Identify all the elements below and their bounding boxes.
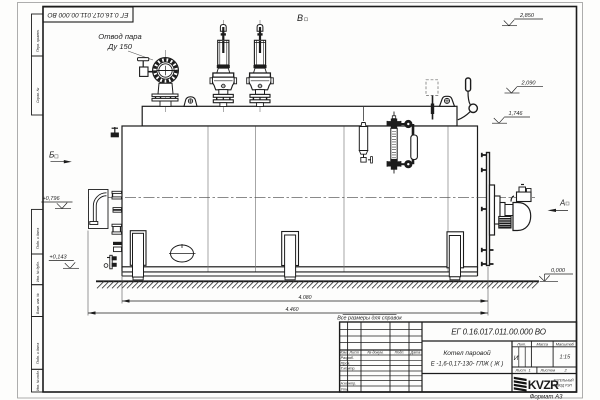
svg-text:2,850: 2,850 bbox=[519, 13, 535, 19]
svg-text:Т.контр.: Т.контр. bbox=[341, 367, 356, 371]
svg-text:Лист: Лист bbox=[349, 351, 360, 355]
svg-text:Н.контр.: Н.контр. bbox=[341, 382, 357, 386]
svg-text:1,746: 1,746 bbox=[509, 111, 524, 117]
svg-text:Лит.: Лит. bbox=[516, 342, 526, 347]
svg-text:Подп. и дата: Подп. и дата bbox=[36, 228, 40, 249]
svg-text:2,090: 2,090 bbox=[521, 81, 537, 87]
svg-text:Инв. № подл.: Инв. № подл. bbox=[36, 370, 40, 391]
svg-text:Разраб.: Разраб. bbox=[341, 356, 354, 360]
svg-text:Масса: Масса bbox=[536, 342, 548, 347]
svg-text:Дата: Дата bbox=[410, 351, 421, 355]
svg-text:Утв.: Утв. bbox=[341, 387, 349, 391]
svg-text:Б: Б bbox=[49, 151, 55, 160]
svg-text:Взам. инв. №: Взам. инв. № bbox=[36, 293, 40, 314]
svg-text:Все размеры для справок: Все размеры для справок bbox=[337, 316, 402, 322]
svg-text:Подп. и дата: Подп. и дата bbox=[36, 343, 40, 364]
svg-text:№ докум.: № докум. bbox=[367, 351, 383, 355]
svg-text:Пров.: Пров. bbox=[341, 361, 351, 365]
svg-text:4.080: 4.080 bbox=[299, 295, 312, 301]
svg-text:Изм.: Изм. bbox=[340, 351, 348, 355]
svg-text:Справ. №: Справ. № bbox=[36, 87, 40, 103]
svg-text:Инв. № дубл.: Инв. № дубл. bbox=[36, 261, 40, 282]
svg-text:+0,796: +0,796 bbox=[42, 196, 60, 202]
svg-text:1:15: 1:15 bbox=[559, 355, 571, 361]
svg-text:ЕГ 0.16.017.011.00.000 ВО: ЕГ 0.16.017.011.00.000 ВО bbox=[47, 11, 128, 18]
svg-text:Перв. примен.: Перв. примен. bbox=[36, 29, 40, 52]
svg-text:ЗАВОД РЭП: ЗАВОД РЭП bbox=[554, 384, 573, 388]
svg-text:+0,143: +0,143 bbox=[49, 255, 67, 261]
svg-text:Формат А3: Формат А3 bbox=[530, 395, 563, 400]
svg-text:КОТЕЛЬНЫЙ: КОТЕЛЬНЫЙ bbox=[554, 379, 575, 383]
svg-text:Листов: Листов bbox=[540, 368, 556, 373]
svg-text:Отвод пара: Отвод пара bbox=[98, 32, 141, 41]
svg-text:Е -1,6-0,17-130- ГЛЖ ( Ж ): Е -1,6-0,17-130- ГЛЖ ( Ж ) bbox=[431, 362, 504, 368]
svg-text:1: 1 bbox=[529, 368, 531, 373]
svg-text:В: В bbox=[297, 13, 303, 23]
svg-text:ЕГ 0.16.017.011.00.000 ВО: ЕГ 0.16.017.011.00.000 ВО bbox=[451, 327, 546, 336]
svg-text:А: А bbox=[559, 199, 565, 208]
svg-text:И: И bbox=[514, 355, 519, 362]
svg-text:4.460: 4.460 bbox=[286, 307, 299, 313]
svg-text:Лист: Лист bbox=[515, 368, 527, 373]
svg-text:0,000: 0,000 bbox=[551, 268, 566, 274]
svg-text:Котел паровой: Котел паровой bbox=[443, 349, 491, 357]
svg-text:Масштаб: Масштаб bbox=[556, 342, 575, 347]
svg-text:Ду 150: Ду 150 bbox=[107, 42, 133, 51]
svg-text:Подп.: Подп. bbox=[395, 351, 405, 355]
